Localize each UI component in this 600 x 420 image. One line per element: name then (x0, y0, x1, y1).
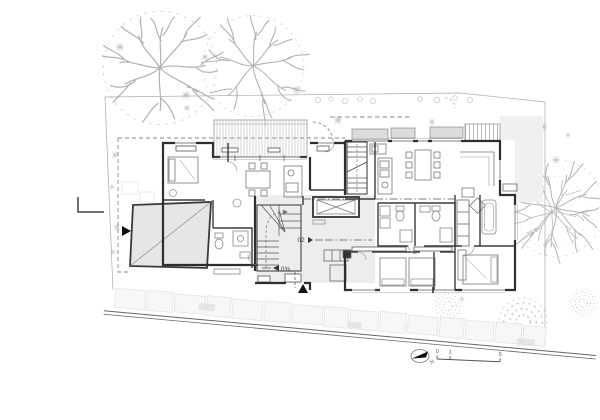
scale-tick-1: 1 (449, 350, 452, 356)
floor-plan-drawing: 02 0% N 0 1 5 (0, 0, 600, 420)
bush-icon (569, 289, 597, 317)
entrance-arrow-icon (298, 284, 308, 293)
tree-icon (102, 11, 224, 124)
garden-plot-outlines (122, 182, 154, 202)
north-arrow: N (411, 350, 435, 366)
floor-plan-canvas: 02 0% N 0 1 5 (0, 0, 600, 420)
bush-icon (433, 291, 463, 321)
sidewalk-street (104, 286, 599, 359)
roof-planter-strips (352, 124, 500, 141)
scale-tick-0: 0 (436, 349, 439, 355)
slope-marker-label: 0% (281, 267, 291, 273)
garden-shrub-row (315, 96, 472, 104)
level-marker-label: 02 (298, 238, 306, 244)
corner-bracket-mark (78, 197, 104, 212)
north-letter: N (429, 359, 435, 366)
scale-tick-5: 5 (499, 352, 502, 358)
garage (130, 202, 211, 268)
scale-bar: 0 1 5 (435, 349, 501, 362)
section-arrow-west-icon (122, 226, 131, 236)
